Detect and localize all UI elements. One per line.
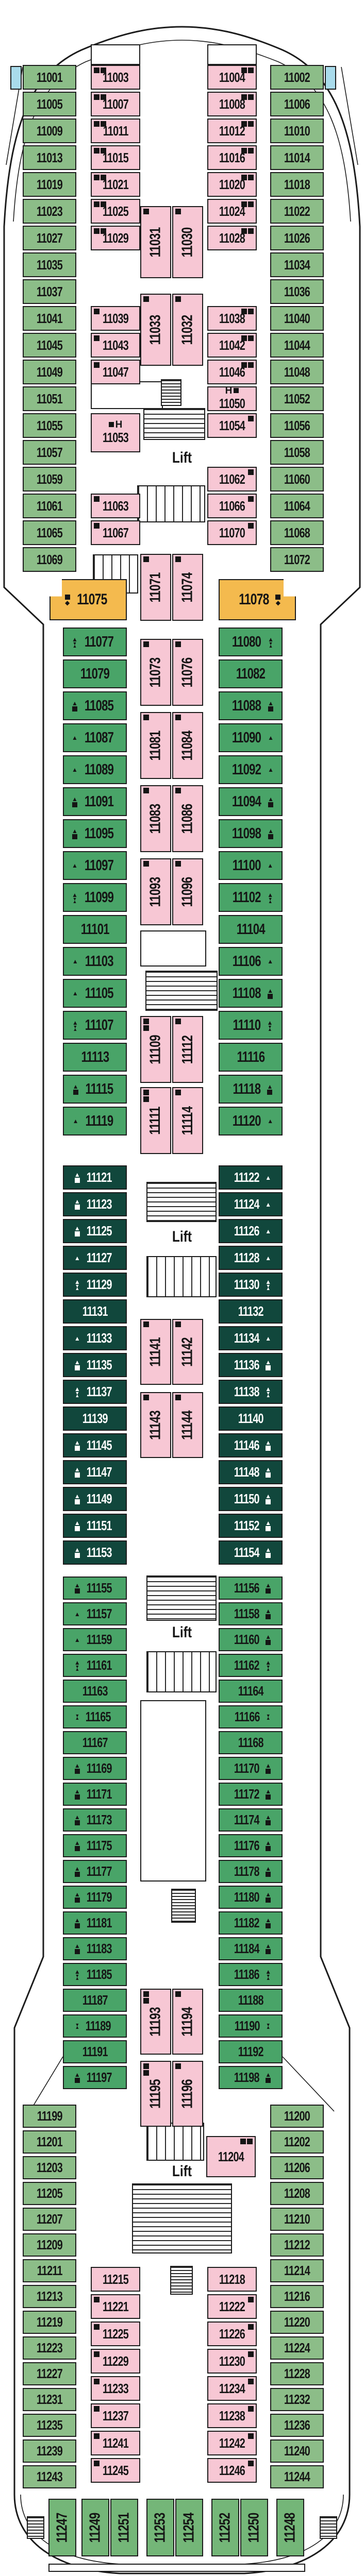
cabin-11253[interactable]: 11253 — [146, 2499, 174, 2556]
cabin-11180[interactable]: 11180▲ — [219, 1886, 283, 1909]
cabin-11016[interactable]: 11016 — [207, 145, 257, 170]
cabin-11158[interactable]: 11158▲ — [219, 1602, 283, 1625]
berth-symbols: ▲ — [265, 1815, 271, 1825]
cabin-11058[interactable]: 11058 — [270, 440, 324, 465]
hourglass-icon: ▼▲ — [75, 1392, 79, 1397]
cabin-11041[interactable]: 11041 — [23, 306, 76, 331]
cabin-number: 11172 — [234, 1786, 259, 1802]
cabin-11092[interactable]: 11092▲ — [219, 755, 283, 784]
cabin-11191[interactable]: 11191 — [63, 2040, 127, 2063]
cabin-11121[interactable]: ▲11121 — [63, 1165, 127, 1190]
square-icon — [248, 148, 254, 154]
cabin-11051[interactable]: 11051 — [23, 386, 76, 411]
cabin-11148[interactable]: 11148▲ — [219, 1460, 283, 1484]
cabin-11165[interactable]: ▼▲11165 — [63, 1705, 127, 1728]
cabin-11064[interactable]: 11064 — [270, 494, 324, 518]
triangle-icon: ▲ — [267, 863, 273, 868]
cabin-number: 11013 — [37, 150, 62, 166]
cabin-11176[interactable]: 11176▲ — [219, 1834, 283, 1857]
cabin-11110[interactable]: 11110▲▼▲ — [219, 1011, 283, 1040]
cabin-11135[interactable]: ▲11135 — [63, 1353, 127, 1377]
cabin-11164[interactable]: 11164 — [219, 1680, 283, 1703]
cabin-11138[interactable]: 11138▲▼▲ — [219, 1380, 283, 1404]
cabin-11232[interactable]: 11232 — [270, 2388, 324, 2411]
cabin-number: 11116 — [237, 1049, 264, 1066]
berth-symbols: ▲ — [73, 1118, 79, 1124]
cabin-11069[interactable]: 11069 — [23, 547, 76, 572]
cabin-11015[interactable]: 11015 — [91, 145, 140, 170]
cabin-11211[interactable]: 11211 — [23, 2259, 76, 2282]
cabin-11113[interactable]: 11113 — [63, 1043, 127, 1072]
cabin-11128[interactable]: 11128▲ — [219, 1246, 283, 1270]
cabin-11012[interactable]: 11012 — [207, 118, 257, 143]
cabin-number: 11019 — [37, 177, 62, 193]
cabin-11025[interactable]: 11025 — [91, 199, 140, 224]
cabin-11009[interactable]: 11009 — [23, 118, 76, 143]
cabin-11132[interactable]: 11132 — [219, 1299, 283, 1324]
cabin-11252[interactable]: 11252 — [211, 2499, 239, 2556]
cabin-11214[interactable]: 11214 — [270, 2259, 324, 2282]
cabin-11014[interactable]: 11014 — [270, 145, 324, 170]
cabin-11122[interactable]: 11122▲ — [219, 1165, 283, 1190]
cabin-11145[interactable]: ▲11145 — [63, 1433, 127, 1458]
cabin-11056[interactable]: 11056 — [270, 413, 324, 438]
cabin-11104[interactable]: 11104 — [219, 915, 283, 944]
cabin-11065[interactable]: 11065 — [23, 520, 76, 545]
cabin-11254[interactable]: 11254 — [175, 2499, 203, 2556]
cabin-11048[interactable]: 11048 — [270, 360, 324, 384]
cabin-11124[interactable]: 11124▲ — [219, 1192, 283, 1216]
cabin-11003[interactable]: 11003 — [91, 65, 140, 90]
cabin-11022[interactable]: 11022 — [270, 199, 324, 224]
cabin-11112[interactable]: 11112 — [172, 1016, 203, 1083]
cabin-11083[interactable]: 11083 — [140, 785, 171, 852]
cabin-11116[interactable]: 11116 — [219, 1043, 283, 1072]
cabin-11101[interactable]: 11101 — [63, 915, 127, 944]
cabin-11050[interactable]: H11050 — [207, 386, 257, 411]
cabin-11233[interactable]: 11233 — [91, 2376, 140, 2401]
cabin-number: 11005 — [37, 96, 62, 112]
cabin-11111[interactable]: 11111 — [140, 1087, 171, 1154]
cabin-11250[interactable]: 11250 — [240, 2499, 268, 2556]
cabin-11089[interactable]: ▲11089 — [63, 755, 127, 784]
cabin-11082[interactable]: 11082 — [219, 659, 283, 688]
cabin-11080[interactable]: 11080▲▼▲ — [219, 628, 283, 656]
cabin-11063[interactable]: 11063 — [91, 494, 140, 518]
cabin-11141[interactable]: 11141 — [140, 1319, 171, 1385]
cabin-11200[interactable]: 11200 — [270, 2105, 324, 2128]
cabin-11053[interactable]: H11053 — [91, 413, 140, 452]
cabin-number: 11215 — [103, 2272, 128, 2287]
cabin-11174[interactable]: 11174▲ — [219, 1808, 283, 1832]
cabin-11072[interactable]: 11072 — [270, 547, 324, 572]
cabin-11019[interactable]: 11019 — [23, 172, 76, 197]
cabin-11126[interactable]: 11126▲ — [219, 1219, 283, 1243]
cabin-11054[interactable]: 11054 — [207, 413, 257, 438]
cabin-11034[interactable]: 11034 — [270, 252, 324, 277]
cabin-11151[interactable]: ▲11151 — [63, 1514, 127, 1538]
cabin-11102[interactable]: 11102▲▼▲ — [219, 883, 283, 912]
cabin-11105[interactable]: ▲11105 — [63, 979, 127, 1008]
cabin-11237[interactable]: 11237 — [91, 2403, 140, 2428]
cabin-11247[interactable]: 11247 — [48, 2499, 76, 2556]
cabin-11021[interactable]: 11021 — [91, 172, 140, 197]
cabin-11162[interactable]: 11162▲▼▲ — [219, 1654, 283, 1677]
cabin-11107[interactable]: ▲▼▲11107 — [63, 1011, 127, 1040]
cabin-11030[interactable]: 11030 — [172, 206, 203, 278]
cabin-11095[interactable]: ▲11095 — [63, 819, 127, 848]
cabin-11032[interactable]: 11032 — [172, 294, 203, 366]
cabin-11008[interactable]: 11008 — [207, 92, 257, 116]
cabin-11240[interactable]: 11240 — [270, 2439, 324, 2463]
square-icon — [175, 641, 181, 647]
cabin-11013[interactable]: 11013 — [23, 145, 76, 170]
cabin-11244[interactable]: 11244 — [270, 2465, 324, 2488]
berth-symbols: ▲▼▲ — [265, 1386, 271, 1397]
cabin-11188[interactable]: 11188 — [219, 1989, 283, 2012]
cabin-11024[interactable]: 11024 — [207, 199, 257, 224]
cabin-11077[interactable]: ▲▼▲11077 — [63, 628, 127, 656]
cabin-11131[interactable]: 11131 — [63, 1299, 127, 1324]
square-icons — [175, 2063, 181, 2069]
cabin-11005[interactable]: 11005 — [23, 92, 76, 116]
cabin-11172[interactable]: 11172▲ — [219, 1783, 283, 1806]
cabin-11123[interactable]: ▲11123 — [63, 1192, 127, 1216]
cabin-11155[interactable]: ▲11155 — [63, 1577, 127, 1600]
cabin-11062[interactable]: 11062 — [207, 467, 257, 492]
cabin-11213[interactable]: 11213 — [23, 2285, 76, 2308]
cabin-11049[interactable]: 11049 — [23, 360, 76, 384]
cabin-number: 11062 — [219, 471, 245, 487]
cabin-11108[interactable]: 11108▲ — [219, 979, 283, 1008]
cabin-11153[interactable]: ▲11153 — [63, 1540, 127, 1565]
cabin-11196[interactable]: 11196 — [172, 2061, 203, 2127]
cabin-11002[interactable]: 11002 — [270, 65, 324, 90]
cabin-11229[interactable]: 11229 — [91, 2349, 140, 2374]
cabin-11134[interactable]: 11134▲ — [219, 1326, 283, 1350]
cabin-11193[interactable]: 11193 — [140, 1989, 171, 2055]
cabin-11115[interactable]: ▲11115 — [63, 1075, 127, 1104]
cabin-11218[interactable]: 11218 — [207, 2267, 257, 2292]
cabin-11125[interactable]: ▲11125 — [63, 1219, 127, 1243]
cabin-11006[interactable]: 11006 — [270, 92, 324, 116]
cabin-11142[interactable]: 11142 — [172, 1319, 203, 1385]
cabin-11228[interactable]: 11228 — [270, 2362, 324, 2385]
cabin-11168[interactable]: 11168 — [219, 1731, 283, 1754]
cabin-11127[interactable]: ▲11127 — [63, 1246, 127, 1270]
square-icon — [268, 834, 273, 839]
cabin-11047[interactable]: 11047 — [91, 360, 140, 384]
cabin-11209[interactable]: 11209 — [23, 2233, 76, 2257]
cabin-11221[interactable]: 11221 — [91, 2294, 140, 2319]
cabin-11192[interactable]: 11192 — [219, 2040, 283, 2063]
cabin-11182[interactable]: 11182▲ — [219, 1911, 283, 1935]
cabin-number: 11163 — [82, 1683, 108, 1699]
cabin-11197[interactable]: ▲11197 — [63, 2066, 127, 2089]
cabin-11039[interactable]: 11039 — [91, 306, 140, 331]
cabin-11055[interactable]: 11055 — [23, 413, 76, 438]
cabin-11225[interactable]: 11225 — [91, 2321, 140, 2346]
berth-symbols: ▼▲ — [75, 1715, 79, 1720]
cabin-11198[interactable]: 11198▲ — [219, 2066, 283, 2089]
cabin-11023[interactable]: 11023 — [23, 199, 76, 224]
cabin-11061[interactable]: 11061 — [23, 494, 76, 518]
cabin-11120[interactable]: 11120▲ — [219, 1107, 283, 1136]
cabin-11205[interactable]: 11205 — [23, 2182, 76, 2205]
cabin-11183[interactable]: ▲11183 — [63, 1937, 127, 1960]
square-icons — [143, 209, 149, 214]
cabin-11133[interactable]: ▲11133 — [63, 1326, 127, 1350]
cabin-11004[interactable]: 11004 — [207, 65, 257, 90]
square-icons — [143, 1090, 149, 1102]
cabin-11103[interactable]: ▲11103 — [63, 947, 127, 976]
cabin-11189[interactable]: ▼▲11189 — [63, 2014, 127, 2038]
cabin-11074[interactable]: 11074 — [172, 554, 203, 621]
cabin-11146[interactable]: 11146▲ — [219, 1433, 283, 1458]
hourglass-icon: ▼▲ — [268, 898, 273, 903]
cabin-11007[interactable]: 11007 — [91, 92, 140, 116]
cabin-11184[interactable]: 11184▲ — [219, 1937, 283, 1960]
cabin-11212[interactable]: 11212 — [270, 2233, 324, 2257]
triangle-icon: ▲ — [74, 1815, 80, 1820]
cabin-11154[interactable]: 11154▲ — [219, 1540, 283, 1565]
cabin-11136[interactable]: 11136▲ — [219, 1353, 283, 1377]
cabin-11040[interactable]: 11040 — [270, 306, 324, 331]
cabin-11224[interactable]: 11224 — [270, 2336, 324, 2360]
cabin-11170[interactable]: 11170▲ — [219, 1757, 283, 1780]
cabin-11037[interactable]: 11037 — [23, 279, 76, 304]
cabin-11163[interactable]: 11163 — [63, 1680, 127, 1703]
cabin-11094[interactable]: 11094▲ — [219, 787, 283, 816]
berth-symbols: ▲▼▲ — [72, 637, 78, 648]
square-icon — [241, 121, 247, 127]
cabin-11187[interactable]: 11187 — [63, 1989, 127, 2012]
cabin-11137[interactable]: ▲▼▲11137 — [63, 1380, 127, 1404]
cabin-number: 11045 — [37, 337, 62, 353]
cabin-11251[interactable]: 11251 — [110, 2499, 138, 2556]
cabin-11076[interactable]: 11076 — [172, 639, 203, 706]
cabin-11208[interactable]: 11208 — [270, 2182, 324, 2205]
cabin-11185[interactable]: ▲▼▲11185 — [63, 1963, 127, 1986]
cabin-11179[interactable]: ▲11179 — [63, 1886, 127, 1909]
cabin-11175[interactable]: ▲11175 — [63, 1834, 127, 1857]
cabin-11239[interactable]: 11239 — [23, 2439, 76, 2463]
cabin-11210[interactable]: 11210 — [270, 2208, 324, 2231]
cabin-11143[interactable]: 11143 — [140, 1392, 171, 1458]
cabin-11245[interactable]: 11245 — [91, 2458, 140, 2483]
cabin-11230[interactable]: 11230 — [207, 2349, 257, 2374]
cabin-11157[interactable]: ▲11157 — [63, 1602, 127, 1625]
cabin-11085[interactable]: ▲11085 — [63, 691, 127, 720]
cabin-11090[interactable]: 11090▲ — [219, 723, 283, 752]
cabin-11231[interactable]: 11231 — [23, 2388, 76, 2411]
cabin-11150[interactable]: 11150▲ — [219, 1487, 283, 1511]
cabin-11042[interactable]: 11042 — [207, 333, 257, 358]
cabin-11045[interactable]: 11045 — [23, 333, 76, 358]
cabin-11149[interactable]: ▲11149 — [63, 1487, 127, 1511]
cabin-number: 11223 — [37, 2340, 62, 2356]
cabin-11203[interactable]: 11203 — [23, 2156, 76, 2179]
cabin-11020[interactable]: 11020 — [207, 172, 257, 197]
lift-label: Lift — [172, 449, 192, 467]
cabin-11227[interactable]: 11227 — [23, 2362, 76, 2385]
cabin-11242[interactable]: 11242 — [207, 2431, 257, 2455]
cabin-11011[interactable]: 11011 — [91, 118, 140, 143]
cabin-11195[interactable]: 11195 — [140, 2061, 171, 2127]
cabin-11066[interactable]: 11066 — [207, 494, 257, 518]
square-icon — [94, 148, 100, 154]
cabin-11249[interactable]: 11249 — [81, 2499, 109, 2556]
cabin-11109[interactable]: 11109 — [140, 1016, 171, 1083]
cabin-11060[interactable]: 11060 — [270, 467, 324, 492]
cabin-11159[interactable]: ▲11159 — [63, 1628, 127, 1651]
cabin-11001[interactable]: 11001 — [23, 65, 76, 90]
cabin-11057[interactable]: 11057 — [23, 440, 76, 465]
cabin-11070[interactable]: 11070 — [207, 520, 257, 545]
cabin-11223[interactable]: 11223 — [23, 2336, 76, 2360]
cabin-11035[interactable]: 11035 — [23, 252, 76, 277]
cabin-11031[interactable]: 11031 — [140, 206, 171, 278]
cabin-number: 11050 — [219, 396, 245, 412]
cabin-11097[interactable]: ▲11097 — [63, 851, 127, 880]
square-icon — [248, 523, 254, 529]
cabin-number: 11056 — [284, 418, 310, 434]
cabin-number: 11037 — [37, 284, 62, 300]
cabin-11046[interactable]: 11046 — [207, 360, 257, 384]
cabin-11096[interactable]: 11096 — [172, 858, 203, 925]
cabin-11207[interactable]: 11207 — [23, 2208, 76, 2231]
cabin-11147[interactable]: ▲11147 — [63, 1460, 127, 1484]
cabin-11106[interactable]: 11106▲ — [219, 947, 283, 976]
berth-symbols: ◆ — [275, 595, 280, 605]
cabin-11222[interactable]: 11222 — [207, 2294, 257, 2319]
square-icons — [143, 715, 149, 720]
triangle-icon: ▲ — [267, 1118, 273, 1124]
cabin-11235[interactable]: 11235 — [23, 2414, 76, 2437]
cabin-11036[interactable]: 11036 — [270, 279, 324, 304]
cabin-11171[interactable]: ▲11171 — [63, 1783, 127, 1806]
cabin-11052[interactable]: 11052 — [270, 386, 324, 411]
cabin-11161[interactable]: ▲▼▲11161 — [63, 1654, 127, 1677]
cabin-11100[interactable]: 11100▲ — [219, 851, 283, 880]
cabin-11073[interactable]: 11073 — [140, 639, 171, 706]
cabin-11144[interactable]: 11144 — [172, 1392, 203, 1458]
cabin-number: 11018 — [284, 177, 310, 193]
cabin-11018[interactable]: 11018 — [270, 172, 324, 197]
square-icon — [75, 1923, 80, 1928]
cabin-number: 11168 — [238, 1735, 263, 1751]
cabin-11071[interactable]: 11071 — [140, 554, 171, 621]
cabin-11139[interactable]: 11139 — [63, 1406, 127, 1431]
cabin-11201[interactable]: 11201 — [23, 2130, 76, 2154]
square-icon — [143, 715, 149, 720]
cabin-11177[interactable]: ▲11177 — [63, 1860, 127, 1883]
cabin-11241[interactable]: 11241 — [91, 2431, 140, 2455]
cabin-11027[interactable]: 11027 — [23, 226, 76, 250]
cabin-11236[interactable]: 11236 — [270, 2414, 324, 2437]
cabin-11160[interactable]: 11160▲ — [219, 1628, 283, 1651]
square-icon — [175, 861, 181, 867]
cabin-number: 11071 — [147, 572, 164, 602]
triangle-icon: ▲ — [268, 701, 274, 706]
cabin-11029[interactable]: 11029 — [91, 226, 140, 250]
triangle-icon: ▲ — [72, 735, 78, 740]
square-icon — [94, 175, 100, 180]
cabin-11206[interactable]: 11206 — [270, 2156, 324, 2179]
cabin-11181[interactable]: ▲11181 — [63, 1911, 127, 1935]
cabin-11186[interactable]: 11186▲▼▲ — [219, 1963, 283, 1986]
cabin-11028[interactable]: 11028 — [207, 226, 257, 250]
cabin-11248[interactable]: 11248 — [276, 2499, 304, 2556]
cabin-11140[interactable]: 11140 — [219, 1406, 283, 1431]
cabin-11079[interactable]: 11079 — [63, 659, 127, 688]
cabin-11202[interactable]: 11202 — [270, 2130, 324, 2154]
cabin-11199[interactable]: 11199 — [23, 2105, 76, 2128]
cabin-11234[interactable]: 11234 — [207, 2376, 257, 2401]
cabin-11190[interactable]: 11190▼▲ — [219, 2014, 283, 2038]
cabin-11026[interactable]: 11026 — [270, 226, 324, 250]
cabin-11152[interactable]: 11152▲ — [219, 1514, 283, 1538]
cabin-11246[interactable]: 11246 — [207, 2458, 257, 2483]
cabin-11067[interactable]: 11067 — [91, 520, 140, 545]
cabin-11178[interactable]: 11178▲ — [219, 1860, 283, 1883]
cabin-11194[interactable]: 11194 — [172, 1989, 203, 2055]
cabin-11081[interactable]: 11081 — [140, 712, 171, 779]
cabin-11044[interactable]: 11044 — [270, 333, 324, 358]
cabin-11220[interactable]: 11220 — [270, 2311, 324, 2334]
cabin-11130[interactable]: 11130▲▼▲ — [219, 1273, 283, 1297]
cabin-11118[interactable]: 11118▲ — [219, 1075, 283, 1104]
cabin-11215[interactable]: 11215 — [91, 2267, 140, 2292]
cabin-11099[interactable]: ▲▼▲11099 — [63, 883, 127, 912]
cabin-11243[interactable]: 11243 — [23, 2465, 76, 2488]
cabin-11098[interactable]: 11098▲ — [219, 819, 283, 848]
triangle-icon: ▲ — [72, 828, 78, 834]
cabin-11119[interactable]: ▲11119 — [63, 1107, 127, 1136]
berth-symbols: ▲▼▲ — [74, 1660, 80, 1671]
cabin-number: 11192 — [238, 2044, 263, 2060]
cabin-11059[interactable]: 11059 — [23, 467, 76, 492]
cabin-11033[interactable]: 11033 — [140, 294, 171, 366]
square-icon — [101, 201, 106, 207]
cabin-11093[interactable]: 11093 — [140, 858, 171, 925]
cabin-11088[interactable]: 11088▲ — [219, 691, 283, 720]
berth-symbols: ▲ — [72, 991, 78, 996]
cabin-11091[interactable]: ▲11091 — [63, 787, 127, 816]
cabin-11156[interactable]: 11156▲ — [219, 1577, 283, 1600]
cabin-11043[interactable]: 11043 — [91, 333, 140, 358]
cabin-11086[interactable]: 11086 — [172, 785, 203, 852]
cabin-11238[interactable]: 11238 — [207, 2403, 257, 2428]
cabin-11204[interactable]: 11204 — [206, 2136, 256, 2177]
cabin-11087[interactable]: ▲11087 — [63, 723, 127, 752]
cabin-11068[interactable]: 11068 — [270, 520, 324, 545]
cabin-number: 11194 — [179, 2007, 196, 2037]
cabin-11166[interactable]: 11166▼▲ — [219, 1705, 283, 1728]
cabin-11169[interactable]: ▲11169 — [63, 1757, 127, 1780]
cabin-11084[interactable]: 11084 — [172, 712, 203, 779]
cabin-11010[interactable]: 11010 — [270, 118, 324, 143]
cabin-number: 11248 — [282, 2513, 299, 2543]
cabin-11173[interactable]: ▲11173 — [63, 1808, 127, 1832]
cabin-11038[interactable]: 11038 — [207, 306, 257, 331]
cabin-11167[interactable]: 11167 — [63, 1731, 127, 1754]
cabin-11219[interactable]: 11219 — [23, 2311, 76, 2334]
cabin-11216[interactable]: 11216 — [270, 2285, 324, 2308]
cabin-11129[interactable]: ▲▼▲11129 — [63, 1273, 127, 1297]
cabin-11114[interactable]: 11114 — [172, 1087, 203, 1154]
cabin-11226[interactable]: 11226 — [207, 2321, 257, 2346]
